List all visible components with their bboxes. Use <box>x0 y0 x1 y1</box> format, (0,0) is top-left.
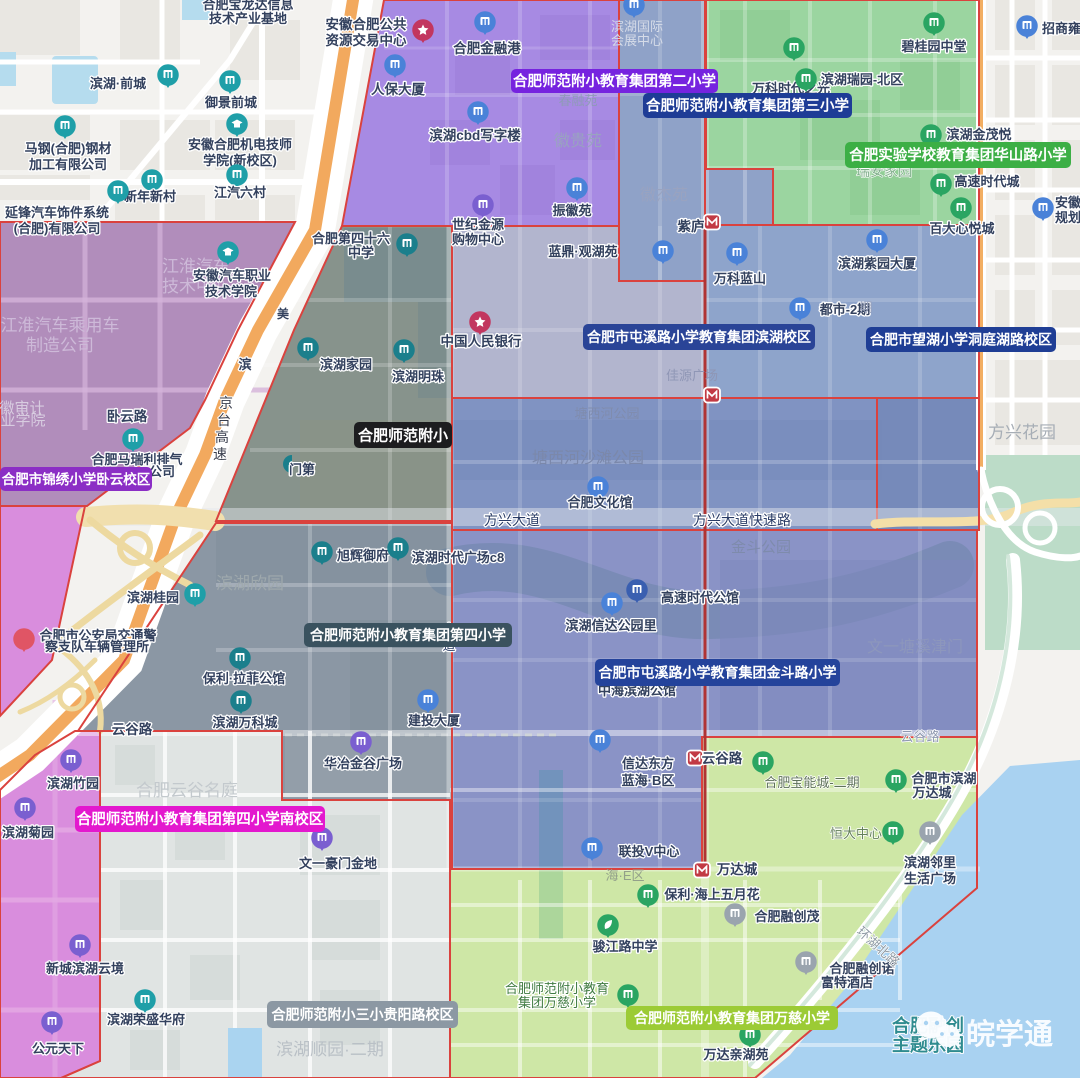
svg-text:合肥师范附小: 合肥师范附小 <box>357 426 448 444</box>
svg-text:塘西河沙滩公园: 塘西河沙滩公园 <box>532 449 644 467</box>
svg-text:云谷路: 云谷路 <box>112 721 153 737</box>
svg-text:文一塘溪津门: 文一塘溪津门 <box>867 638 963 656</box>
svg-text:中国人民银行: 中国人民银行 <box>441 333 522 349</box>
svg-text:云谷路: 云谷路 <box>900 729 939 744</box>
svg-text:会展中心: 会展中心 <box>611 33 663 48</box>
svg-text:保利·拉菲公馆: 保利·拉菲公馆 <box>202 671 285 686</box>
svg-text:滨湖明珠: 滨湖明珠 <box>392 369 445 384</box>
svg-text:江淮汽车乘用车: 江淮汽车乘用车 <box>1 316 120 335</box>
svg-text:华冶金谷广场: 华冶金谷广场 <box>324 756 402 771</box>
svg-text:制造公司: 制造公司 <box>26 336 94 355</box>
svg-text:马钢(合肥)钢材: 马钢(合肥)钢材 <box>25 141 112 156</box>
svg-text:滨湖菊园: 滨湖菊园 <box>2 825 54 840</box>
svg-text:佳源广场: 佳源广场 <box>666 368 718 383</box>
svg-text:恒大中心: 恒大中心 <box>830 826 882 841</box>
svg-text:滨湖国际: 滨湖国际 <box>611 19 663 34</box>
svg-text:合肥师范附小教育集团万慈小学: 合肥师范附小教育集团万慈小学 <box>634 1010 830 1026</box>
svg-text:滨湖·前城: 滨湖·前城 <box>90 76 146 91</box>
svg-text:滨湖cbd写字楼: 滨湖cbd写字楼 <box>429 127 521 143</box>
svg-text:业学院: 业学院 <box>0 411 45 429</box>
svg-text:安徽合肥机电技师: 安徽合肥机电技师 <box>188 137 292 152</box>
svg-text:合肥云谷名庭: 合肥云谷名庭 <box>136 781 238 800</box>
svg-text:资源交易中心: 资源交易中心 <box>326 32 407 48</box>
svg-text:(合肥)有限公司: (合肥)有限公司 <box>14 221 101 236</box>
svg-text:合肥师范附小教育: 合肥师范附小教育 <box>505 981 609 996</box>
svg-text:滨湖信达公园里: 滨湖信达公园里 <box>565 618 656 633</box>
svg-text:旭辉御府: 旭辉御府 <box>336 548 389 563</box>
svg-text:卧云路: 卧云路 <box>107 408 148 424</box>
svg-text:招商雍: 招商雍 <box>1042 21 1080 36</box>
svg-text:滨湖竹园: 滨湖竹园 <box>47 776 99 791</box>
svg-text:合肥师范附小教育集团第三小学: 合肥师范附小教育集团第三小学 <box>645 97 849 115</box>
svg-text:合肥融创诺: 合肥融创诺 <box>829 961 894 976</box>
svg-text:公元天下: 公元天下 <box>32 1041 84 1056</box>
svg-text:江汽六村: 江汽六村 <box>214 185 266 200</box>
svg-text:京: 京 <box>219 395 233 411</box>
svg-text:合肥市望湖小学洞庭湖路校区: 合肥市望湖小学洞庭湖路校区 <box>870 332 1052 348</box>
svg-text:延锋汽车饰件系统: 延锋汽车饰件系统 <box>4 205 109 220</box>
svg-text:富特酒店: 富特酒店 <box>821 975 873 990</box>
svg-text:滨湖顺园·二期: 滨湖顺园·二期 <box>276 1040 384 1059</box>
svg-text:合肥市锦绣小学卧云校区: 合肥市锦绣小学卧云校区 <box>2 471 151 487</box>
svg-text:滨湖桂园: 滨湖桂园 <box>127 590 179 605</box>
svg-text:蓝鼎·观湖苑: 蓝鼎·观湖苑 <box>548 244 617 259</box>
svg-text:海·E区: 海·E区 <box>605 868 644 883</box>
svg-text:万达城: 万达城 <box>911 785 951 800</box>
svg-text:合肥师范附小教育集团第四小学南校区: 合肥师范附小教育集团第四小学南校区 <box>76 810 324 828</box>
svg-text:滨湖瑞园-北区: 滨湖瑞园-北区 <box>821 72 903 87</box>
svg-text:技术产业基地: 技术产业基地 <box>209 11 287 26</box>
svg-text:安徽: 安徽 <box>1055 195 1080 210</box>
svg-text:安徽合肥公共: 安徽合肥公共 <box>326 16 407 32</box>
svg-text:蓝海·B区: 蓝海·B区 <box>622 773 675 788</box>
svg-text:安徽汽车职业: 安徽汽车职业 <box>193 268 271 283</box>
svg-text:滨湖紫园大厦: 滨湖紫园大厦 <box>838 256 917 271</box>
svg-text:合肥实验学校教育集团华山路小学: 合肥实验学校教育集团华山路小学 <box>848 146 1067 164</box>
svg-text:百大心悦城: 百大心悦城 <box>929 221 994 236</box>
svg-text:滨湖邻里: 滨湖邻里 <box>904 855 956 870</box>
svg-text:方兴大道快速路: 方兴大道快速路 <box>693 512 791 528</box>
svg-text:速: 速 <box>213 446 227 462</box>
svg-text:文一豪门金地: 文一豪门金地 <box>299 856 377 871</box>
svg-text:御景前城: 御景前城 <box>204 95 257 110</box>
svg-text:集团万慈小学: 集团万慈小学 <box>518 995 596 1010</box>
svg-text:紫庐: 紫庐 <box>678 218 705 234</box>
svg-text:滨: 滨 <box>238 357 251 372</box>
svg-text:万达城: 万达城 <box>716 861 758 877</box>
svg-text:高: 高 <box>215 429 229 445</box>
svg-text:合肥文化馆: 合肥文化馆 <box>567 495 632 510</box>
svg-text:联投V中心: 联投V中心 <box>619 844 680 859</box>
svg-text:徽杰苑: 徽杰苑 <box>640 186 688 204</box>
svg-text:新年新村: 新年新村 <box>124 189 176 204</box>
svg-text:察支队车辆管理所: 察支队车辆管理所 <box>45 639 149 654</box>
svg-text:中学: 中学 <box>348 245 374 260</box>
svg-text:期: 期 <box>859 300 872 315</box>
svg-text:新城滨湖云境: 新城滨湖云境 <box>46 961 124 976</box>
svg-text:合肥师范附小教育集团第二小学: 合肥师范附小教育集团第二小学 <box>512 72 716 90</box>
svg-text:合肥师范附小三小贵阳路校区: 合肥师范附小三小贵阳路校区 <box>272 1007 454 1023</box>
svg-text:万达亲湖苑: 万达亲湖苑 <box>702 1047 768 1062</box>
svg-text:滨湖荣盛华府: 滨湖荣盛华府 <box>107 1012 185 1027</box>
svg-text:振徽苑: 振徽苑 <box>552 203 591 218</box>
svg-text:金斗公园: 金斗公园 <box>731 539 791 556</box>
svg-text:徽贵苑: 徽贵苑 <box>554 132 602 150</box>
svg-text:技术学院: 技术学院 <box>205 284 257 299</box>
svg-text:合肥宝能城-二期: 合肥宝能城-二期 <box>764 775 859 790</box>
svg-text:骏江路中学: 骏江路中学 <box>592 939 657 954</box>
svg-text:皖学通: 皖学通 <box>966 1017 1053 1051</box>
svg-text:世纪金源: 世纪金源 <box>452 217 504 232</box>
svg-text:保利·海上五月花: 保利·海上五月花 <box>663 887 759 902</box>
svg-text:万科蓝山: 万科蓝山 <box>713 271 766 286</box>
svg-text:生活广场: 生活广场 <box>904 871 956 886</box>
svg-text:合肥师范附小教育集团第四小学: 合肥师范附小教育集团第四小学 <box>310 627 506 643</box>
svg-text:合肥市滨湖: 合肥市滨湖 <box>911 771 976 786</box>
svg-text:加工有限公司: 加工有限公司 <box>28 157 107 172</box>
svg-text:人保大厦: 人保大厦 <box>371 81 425 97</box>
svg-text:高速时代城: 高速时代城 <box>954 174 1019 189</box>
svg-text:公司: 公司 <box>149 464 175 479</box>
svg-text:滨湖时代广场c8: 滨湖时代广场c8 <box>412 550 504 565</box>
svg-text:塘西河公园: 塘西河公园 <box>574 406 639 421</box>
svg-text:高速时代公馆: 高速时代公馆 <box>661 590 739 605</box>
svg-text:方兴花园: 方兴花园 <box>988 423 1056 442</box>
svg-text:方兴大道: 方兴大道 <box>484 512 540 528</box>
svg-text:滨湖家园: 滨湖家园 <box>320 357 372 372</box>
svg-text:规划: 规划 <box>1055 210 1080 225</box>
svg-text:碧桂园中堂: 碧桂园中堂 <box>900 39 966 54</box>
svg-text:云谷路: 云谷路 <box>702 750 743 766</box>
svg-text:春融苑: 春融苑 <box>558 93 597 108</box>
svg-text:合肥市屯溪路小学教育集团滨湖校区: 合肥市屯溪路小学教育集团滨湖校区 <box>587 329 811 345</box>
svg-text:合肥融创茂: 合肥融创茂 <box>754 909 819 924</box>
svg-text:滨湖金茂悦: 滨湖金茂悦 <box>946 127 1011 142</box>
svg-text:合肥第四十六: 合肥第四十六 <box>312 231 390 246</box>
svg-text:美: 美 <box>277 306 290 321</box>
svg-text:台: 台 <box>217 412 231 428</box>
svg-text:购物中心: 购物中心 <box>452 232 504 247</box>
svg-text:滨湖欣园: 滨湖欣园 <box>216 574 284 593</box>
svg-text:合肥金融港: 合肥金融港 <box>453 40 521 56</box>
svg-text:建投大厦: 建投大厦 <box>408 713 461 728</box>
svg-text:合肥市屯溪路小学教育集团金斗路小学: 合肥市屯溪路小学教育集团金斗路小学 <box>599 665 837 681</box>
svg-text:滨湖万科城: 滨湖万科城 <box>212 715 277 730</box>
svg-text:门第: 门第 <box>289 462 315 477</box>
svg-text:信达东方: 信达东方 <box>622 756 674 771</box>
